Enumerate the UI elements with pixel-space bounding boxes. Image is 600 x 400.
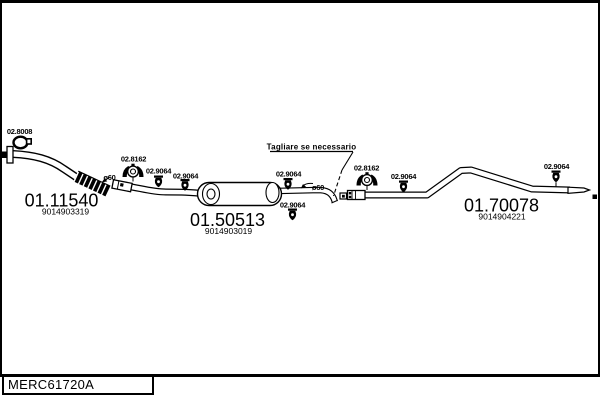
hanger-label: 02.9064 — [544, 162, 570, 171]
clamp-label: 02.8162 — [354, 164, 379, 173]
diameter-label: ø60 — [312, 183, 324, 192]
hanger-icon — [399, 181, 408, 193]
hanger-label: 02.9064 — [173, 172, 199, 181]
oem-ref-muffler: 9014903019 — [205, 226, 253, 236]
front-pipe — [13, 154, 82, 181]
hanger-icon — [288, 209, 297, 221]
pipe-fitting — [340, 193, 347, 199]
catalog-code-box: MERC61720A — [2, 377, 154, 395]
gasket-icon — [14, 137, 32, 149]
catalog-code: MERC61720A — [8, 377, 94, 392]
exhaust-diagram: 02.8008 02.8162 02.9064 02.9064 02.9064 … — [0, 0, 600, 400]
cut-note-label: Tagliare se necessario — [267, 143, 357, 152]
hanger-label: 02.9064 — [276, 170, 302, 179]
oem-ref-front-pipe: 9014903319 — [42, 207, 90, 217]
pipe-end-marker — [593, 195, 598, 200]
muffler — [198, 183, 282, 206]
joint-sleeve — [348, 191, 366, 200]
clamp-icon — [123, 164, 144, 182]
inlet-flange — [2, 147, 14, 164]
clamp-icon — [357, 172, 378, 190]
hanger-label: 02.9064 — [280, 201, 306, 210]
diameter-label: ø60 — [103, 173, 115, 182]
catalog-diagram-page: 02.8008 02.8162 02.9064 02.9064 02.9064 … — [0, 0, 600, 400]
mid-pipe — [126, 186, 206, 194]
gasket-label: 02.8008 — [7, 127, 32, 136]
hanger-icon — [154, 176, 163, 188]
oem-ref-tail-pipe: 9014904221 — [478, 212, 526, 222]
clamp-label: 02.8162 — [121, 155, 146, 164]
hanger-icon — [552, 171, 561, 188]
hanger-label: 02.9064 — [146, 167, 172, 176]
tail-pipe-tip — [568, 187, 590, 193]
hanger-label: 02.9064 — [391, 172, 417, 181]
